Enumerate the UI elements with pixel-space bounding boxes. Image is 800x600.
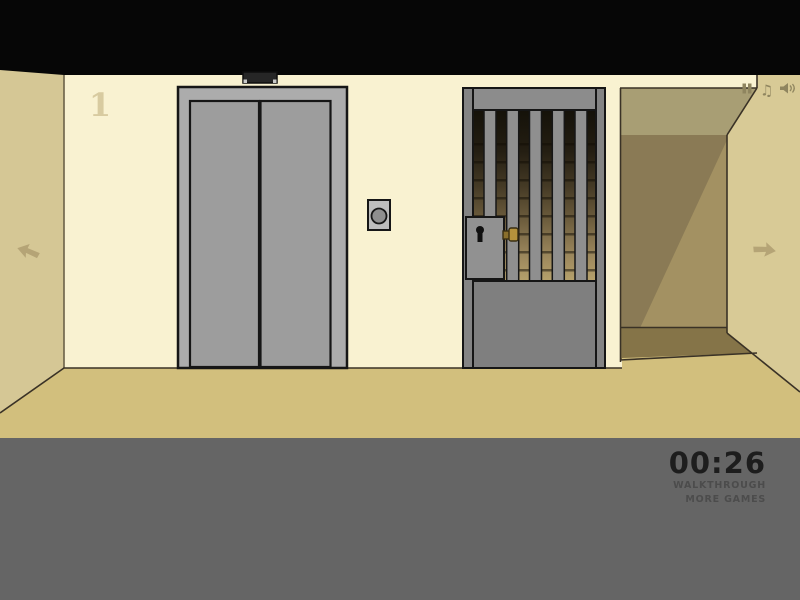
elevator-right-door[interactable] [261,101,331,367]
hud-panel: 00:26 WALKTHROUGH MORE GAMES [669,449,766,507]
elevator-indicator [243,72,277,83]
more-games-link[interactable]: MORE GAMES [669,494,766,506]
left-side-wall [0,70,64,413]
indicator-dot-left [244,80,248,84]
gate-post-right [596,88,605,368]
elevator-call-panel[interactable] [368,200,390,230]
elevator-left-door[interactable] [190,101,259,367]
jail-gate[interactable] [463,88,605,368]
game-stage: 1 [0,0,800,600]
gate-bottom-panel[interactable] [463,281,605,368]
indicator-dot-right [273,80,277,84]
gate-lock[interactable] [466,217,504,279]
gate-lintel [463,88,605,110]
music-note-icon[interactable]: ♫ [760,82,773,100]
walkthrough-link[interactable]: WALKTHROUGH [669,480,766,492]
bottom-bar: 00:26 WALKTHROUGH MORE GAMES [0,438,800,600]
floor-number-label: 1 [89,86,111,124]
timer: 00:26 [669,449,766,478]
elevator [178,72,347,368]
call-button[interactable] [372,209,387,224]
